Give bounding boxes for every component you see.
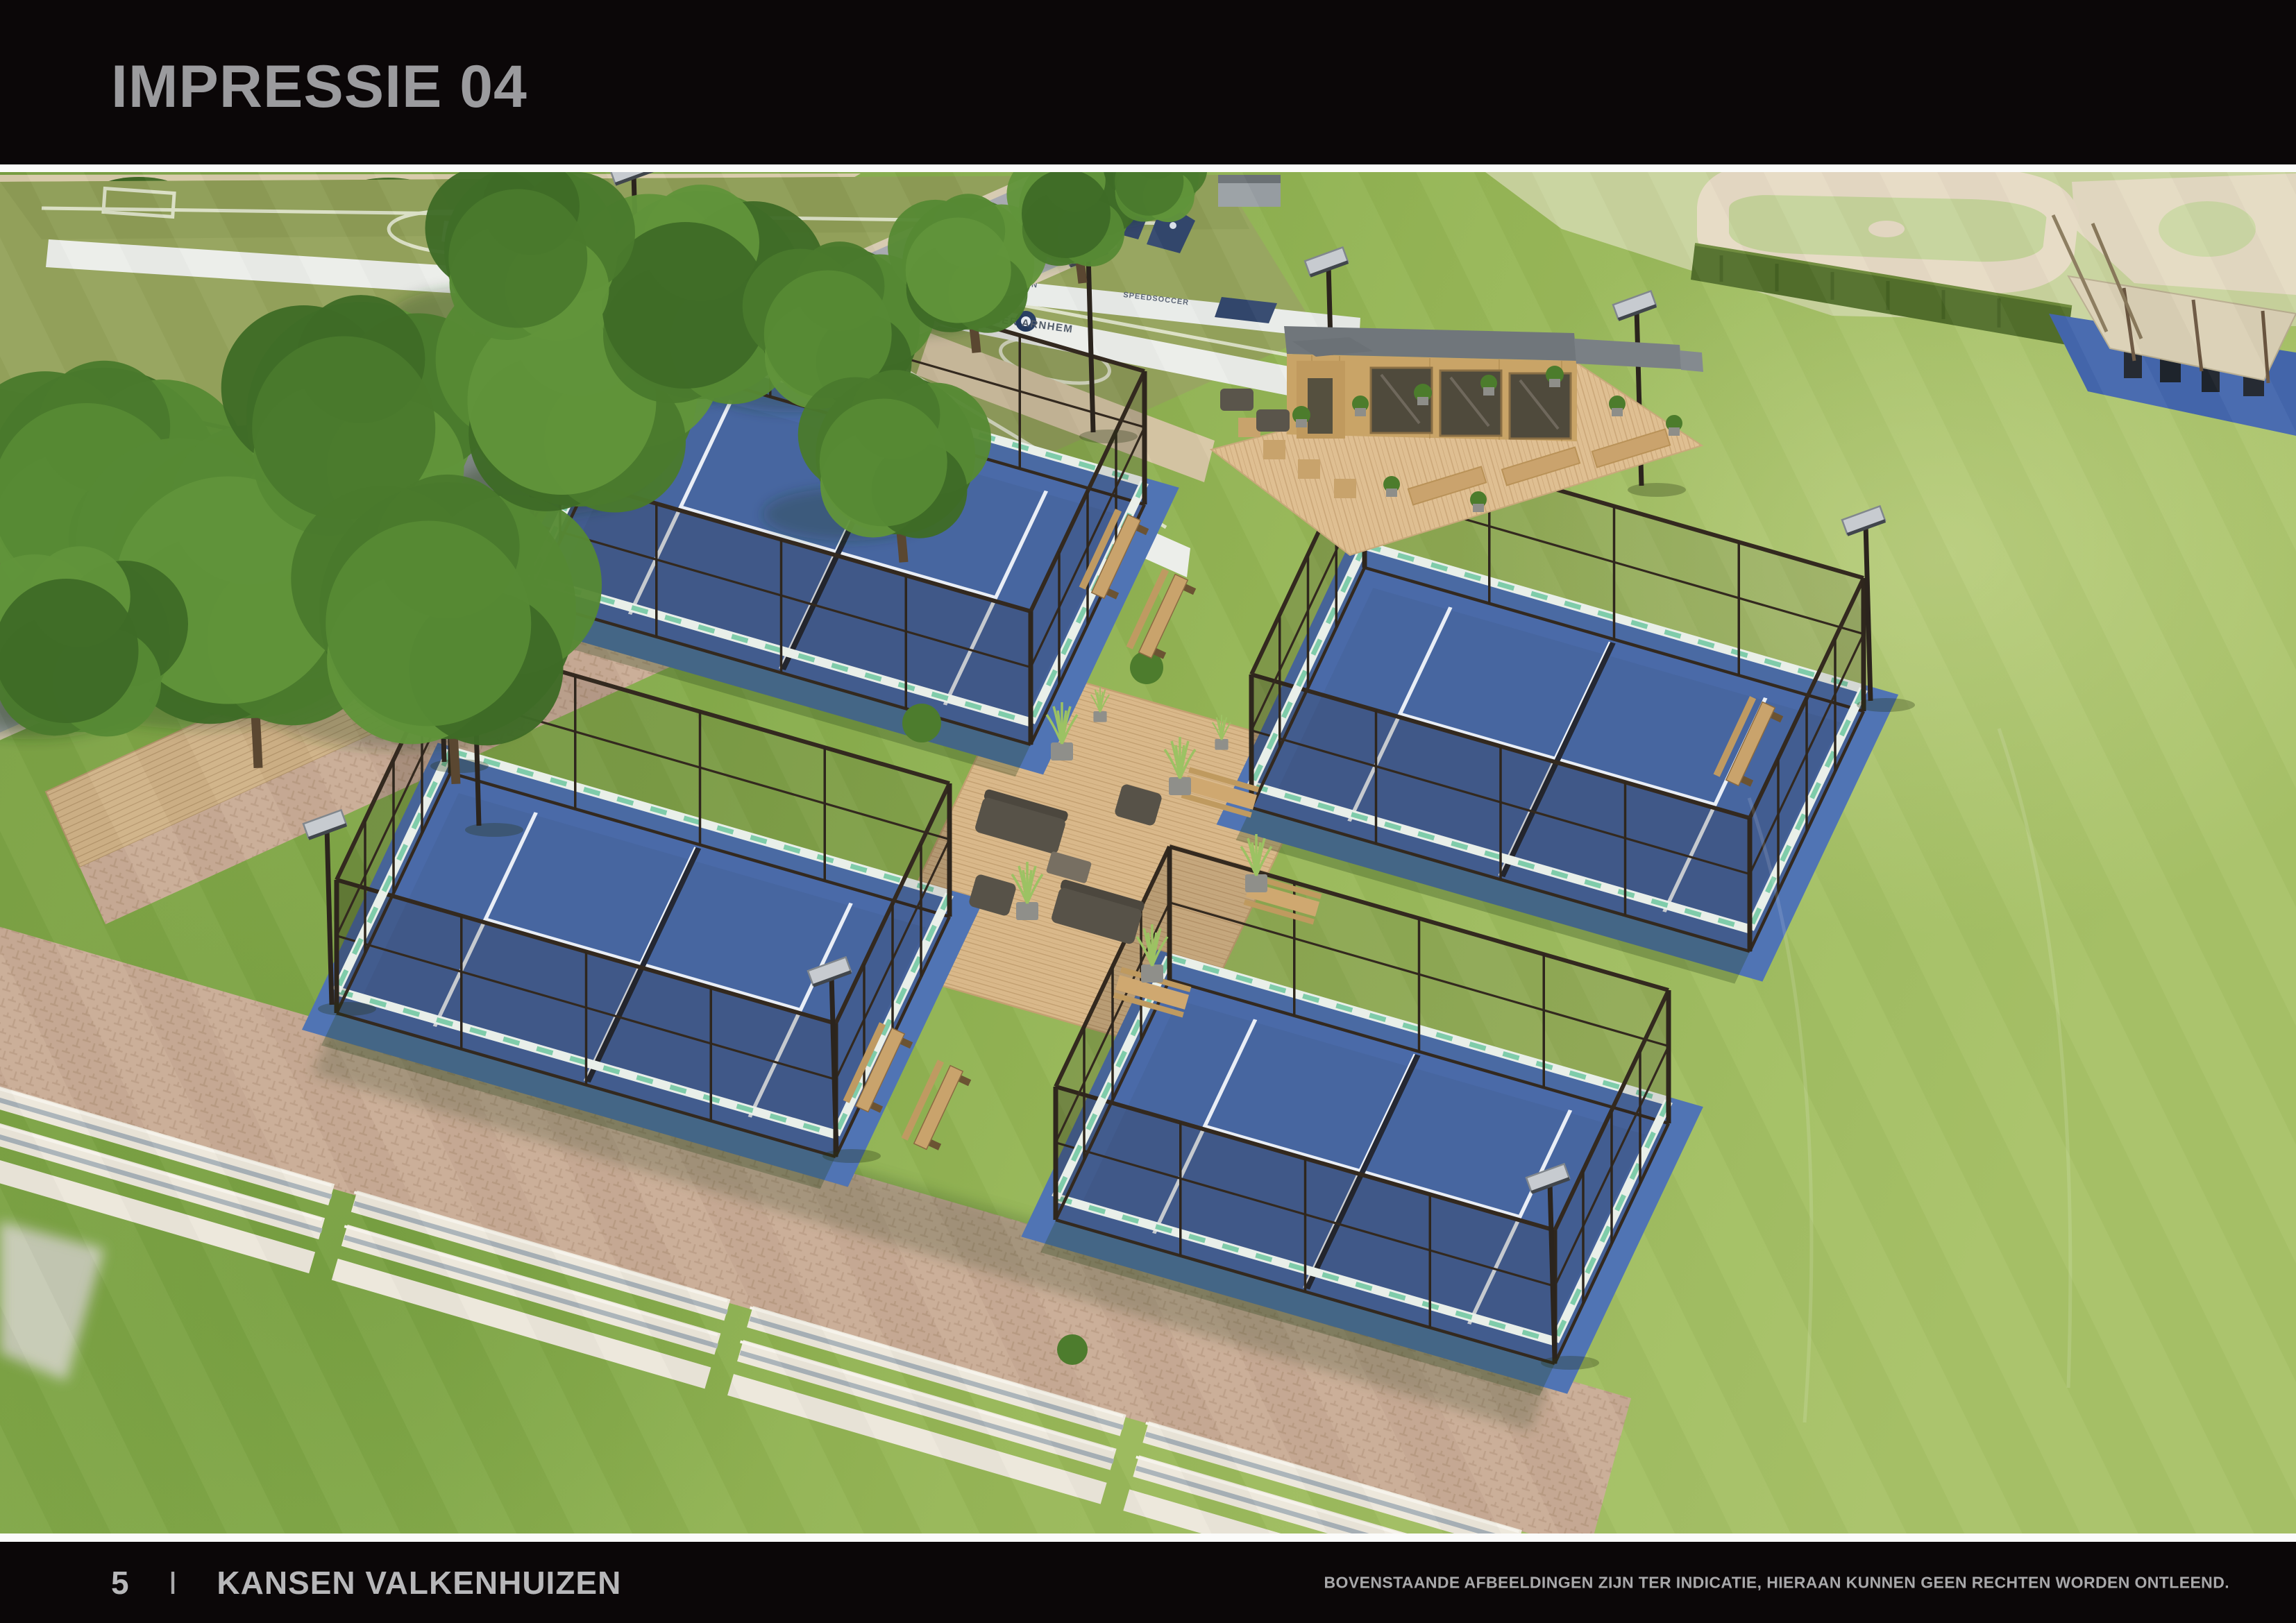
document-page: IMPRESSIE 04 bbox=[0, 0, 2296, 1623]
page-number: 5 bbox=[111, 1564, 130, 1601]
bush bbox=[1057, 1334, 1088, 1365]
footer-disclaimer: BOVENSTAANDE AFBEELDINGEN ZIJN TER INDIC… bbox=[1324, 1573, 2229, 1592]
bush bbox=[902, 704, 941, 742]
divider bbox=[0, 1533, 2296, 1542]
render-image: COMPETITION SPEEDSOCCER SPEEDSOCCER ARNH… bbox=[0, 172, 2296, 1533]
footer-separator: I bbox=[169, 1564, 178, 1601]
footer-title: KANSEN VALKENHUIZEN bbox=[217, 1564, 621, 1601]
page-title: IMPRESSIE 04 bbox=[111, 53, 527, 121]
footer: 5 I KANSEN VALKENHUIZEN BOVENSTAANDE AFB… bbox=[0, 1542, 2296, 1623]
divider bbox=[0, 164, 2296, 172]
